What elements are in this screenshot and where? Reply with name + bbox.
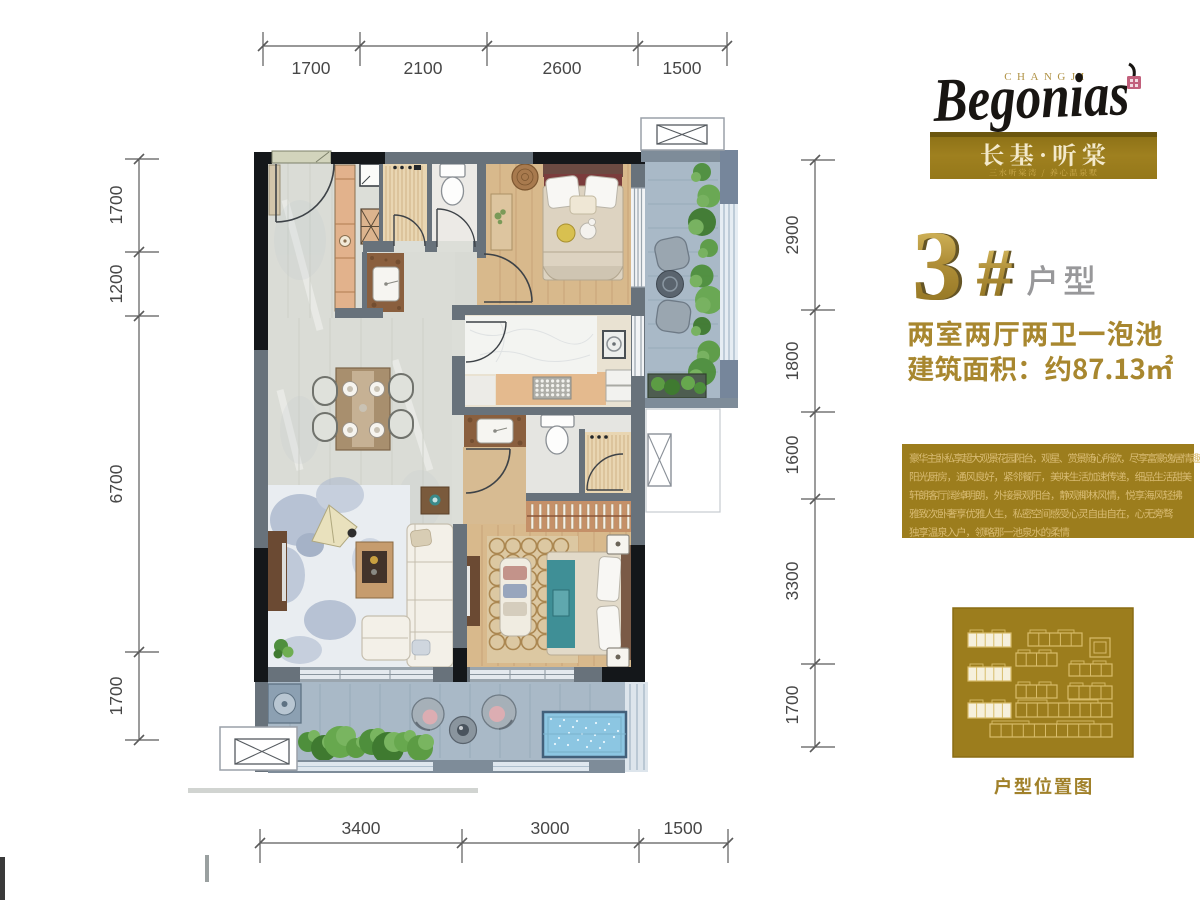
svg-text:1700: 1700 [782, 685, 802, 724]
svg-text:1500: 1500 [663, 58, 702, 78]
svg-text:2100: 2100 [404, 58, 443, 78]
svg-text:Begonias: Begonias [931, 60, 1130, 135]
svg-text:2600: 2600 [543, 58, 582, 78]
svg-text:1700: 1700 [106, 676, 126, 715]
svg-text:1800: 1800 [782, 341, 802, 380]
svg-text:3300: 3300 [782, 561, 802, 600]
svg-text:1700: 1700 [106, 185, 126, 224]
svg-text:1700: 1700 [292, 58, 331, 78]
svg-text:3000: 3000 [531, 818, 570, 838]
svg-text:#: # [976, 236, 1013, 310]
svg-text:6700: 6700 [106, 464, 126, 503]
svg-text:1600: 1600 [782, 435, 802, 474]
svg-text:1500: 1500 [664, 818, 703, 838]
svg-text:2900: 2900 [782, 215, 802, 254]
svg-text:3400: 3400 [342, 818, 381, 838]
svg-text:1200: 1200 [106, 264, 126, 303]
svg-text:3: 3 [912, 210, 962, 321]
